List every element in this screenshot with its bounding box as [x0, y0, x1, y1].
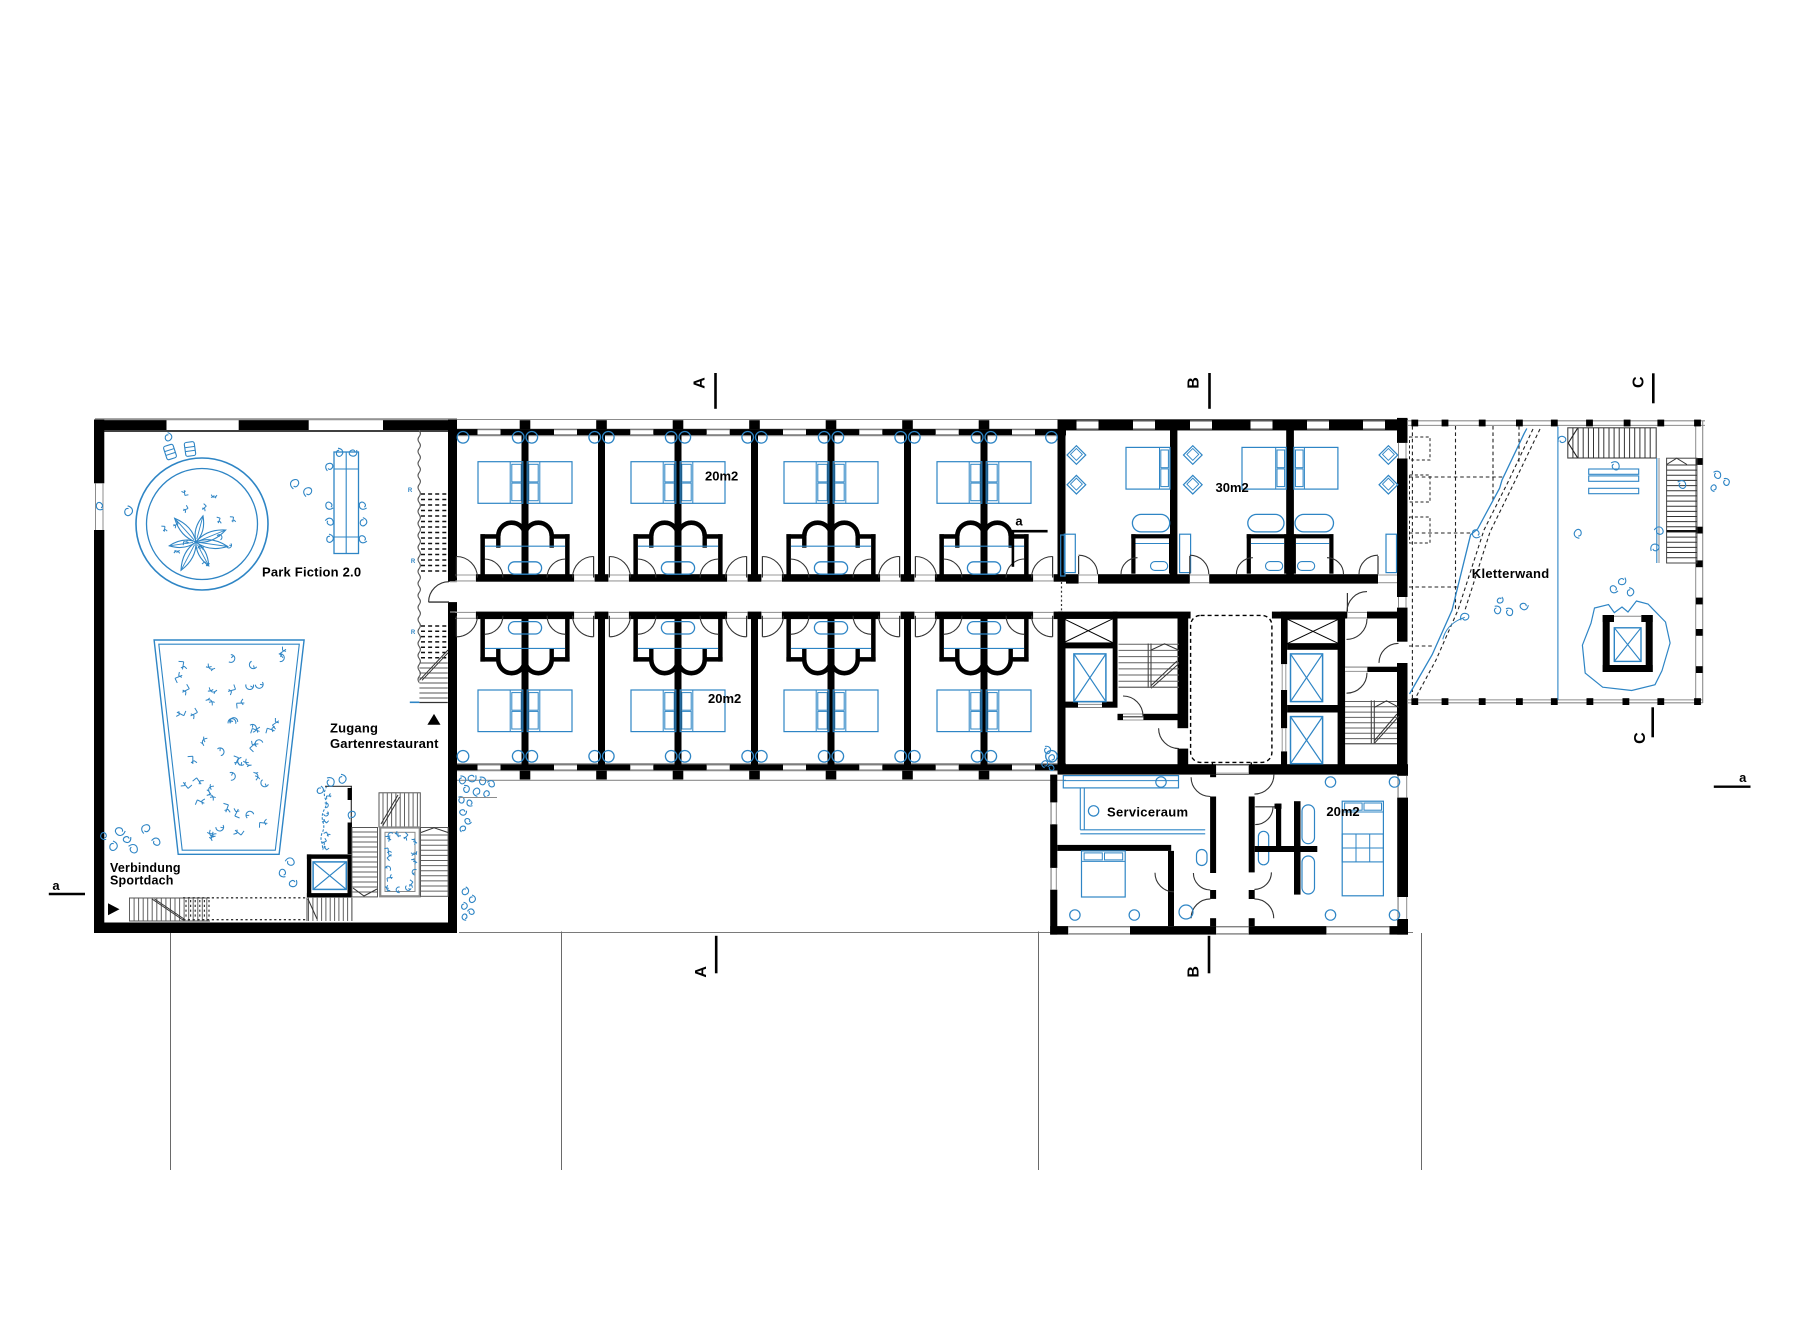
svg-text:R: R	[408, 488, 413, 494]
svg-text:A: A	[692, 377, 709, 389]
svg-text:a: a	[1015, 513, 1023, 528]
svg-text:C: C	[1630, 376, 1647, 388]
svg-text:B: B	[1186, 377, 1203, 389]
svg-text:Park Fiction 2.0: Park Fiction 2.0	[262, 565, 361, 580]
svg-text:a: a	[52, 878, 60, 893]
svg-text:B: B	[1186, 966, 1203, 978]
svg-text:20m2: 20m2	[708, 691, 741, 706]
svg-text:20m2: 20m2	[705, 469, 738, 484]
svg-text:30m2: 30m2	[1216, 480, 1249, 495]
svg-text:Sportdach: Sportdach	[110, 874, 174, 888]
svg-text:20m2: 20m2	[1326, 804, 1359, 819]
svg-text:C: C	[1632, 732, 1649, 744]
svg-text:Gartenrestaurant: Gartenrestaurant	[330, 736, 439, 751]
svg-text:Kletterwand: Kletterwand	[1472, 566, 1550, 581]
svg-text:Serviceraum: Serviceraum	[1107, 805, 1188, 820]
svg-text:R: R	[411, 559, 416, 565]
svg-text:R: R	[411, 630, 416, 636]
svg-text:Zugang: Zugang	[330, 721, 378, 736]
svg-text:A: A	[693, 966, 710, 978]
svg-text:a: a	[1739, 770, 1747, 785]
